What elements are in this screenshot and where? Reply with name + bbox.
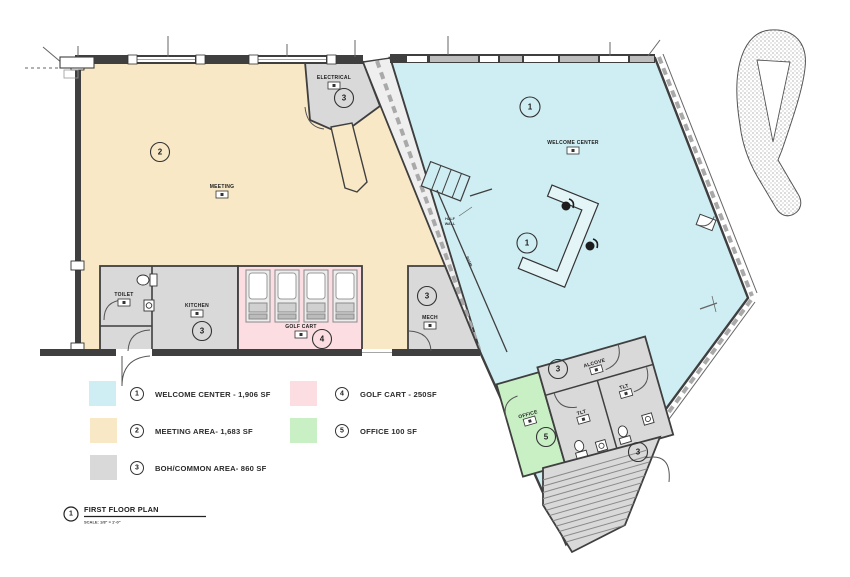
toilet-kitchen-block	[100, 266, 238, 352]
door-swing	[122, 356, 150, 386]
legend-number: 3	[135, 465, 139, 472]
mech-label: MECH	[422, 315, 438, 321]
golf-cart-icon	[333, 270, 357, 322]
golf-cart-icon	[304, 270, 328, 322]
legend: 1 WELCOME CENTER - 1,906 SF 2 MEETING AR…	[89, 381, 437, 480]
legend-swatch-welcome-center	[89, 381, 116, 406]
legend-label-office: OFFICE 100 SF	[360, 427, 417, 436]
toilet-icon	[137, 275, 149, 285]
drawing-scale: SCALE: 1/8" = 1'-0"	[84, 520, 121, 525]
legend-label-welcome-center: WELCOME CENTER - 1,906 SF	[155, 390, 271, 399]
legend-number: 4	[340, 391, 344, 398]
golf-cart-number-badge: 4	[320, 335, 325, 344]
drawing-title: FIRST FLOOR PLAN	[84, 505, 159, 514]
welcome-number-badge: 1	[528, 103, 533, 112]
stairs-number-badge: 3	[636, 448, 641, 457]
welcome-center-label: WELCOME CENTER	[547, 140, 599, 146]
legend-label-meeting: MEETING AREA- 1,683 SF	[155, 427, 253, 436]
title-block: 1 FIRST FLOOR PLAN SCALE: 1/8" = 1'-0"	[64, 505, 206, 525]
kitchen-number-badge: 3	[200, 327, 205, 336]
sink-icon	[642, 413, 654, 425]
half-wall-note: WALL	[445, 222, 456, 226]
legend-number: 1	[135, 391, 139, 398]
drawing-number-badge: 1	[69, 511, 73, 518]
golf-cart-label: GOLF CART	[285, 324, 316, 330]
meeting-number-badge: 2	[158, 148, 163, 157]
alcove-number-badge: 3	[556, 365, 561, 374]
toilet-label: TOILET	[114, 292, 133, 298]
legend-label-boh: BOH/COMMON AREA- 860 SF	[155, 464, 267, 473]
welcome-number-badge: 1	[525, 239, 530, 248]
legend-swatch-golf-cart	[290, 381, 317, 406]
kitchen-label: KITCHEN	[185, 303, 209, 309]
sink-icon	[144, 300, 154, 311]
landscape	[737, 30, 806, 216]
first-floor-plan-drawing: HALF WALL RAMP	[0, 0, 850, 577]
legend-swatch-office	[290, 418, 317, 443]
legend-label-golf-cart: GOLF CART - 250SF	[360, 390, 437, 399]
legend-number: 2	[135, 428, 139, 435]
legend-swatch-meeting	[90, 418, 117, 443]
electrical-number-badge: 3	[342, 94, 347, 103]
sink-icon	[595, 440, 607, 452]
half-wall-note: HALF	[445, 217, 456, 221]
meeting-label: MEETING	[210, 184, 235, 190]
legend-number: 5	[340, 428, 344, 435]
mech-number-badge: 3	[425, 292, 430, 301]
golf-cart-icon	[275, 270, 299, 322]
floor-plan-page: HALF WALL RAMP	[0, 0, 850, 577]
legend-swatch-boh	[90, 455, 117, 480]
office-number-badge: 5	[544, 433, 549, 442]
electrical-label: ELECTRICAL	[317, 75, 351, 81]
golf-cart-icon	[246, 270, 270, 322]
toilet-icon	[150, 274, 157, 286]
